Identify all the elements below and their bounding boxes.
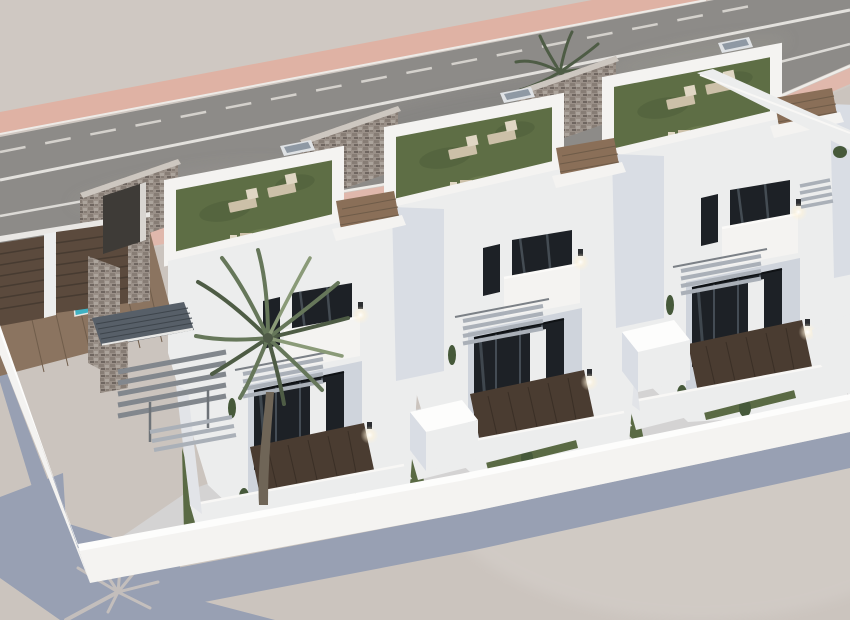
stone-tower-opening-reveal [140, 182, 146, 242]
gate-box-house-3 [622, 320, 690, 392]
gate-pier-white [44, 232, 56, 318]
house-3-plant [833, 146, 847, 158]
architectural-render: Aerial 3D render of a row of three moder… [0, 0, 850, 620]
render-canvas: Aerial 3D render of a row of three moder… [0, 0, 850, 620]
stone-porch-wall [100, 341, 128, 393]
gate-box-house-2 [410, 400, 478, 471]
